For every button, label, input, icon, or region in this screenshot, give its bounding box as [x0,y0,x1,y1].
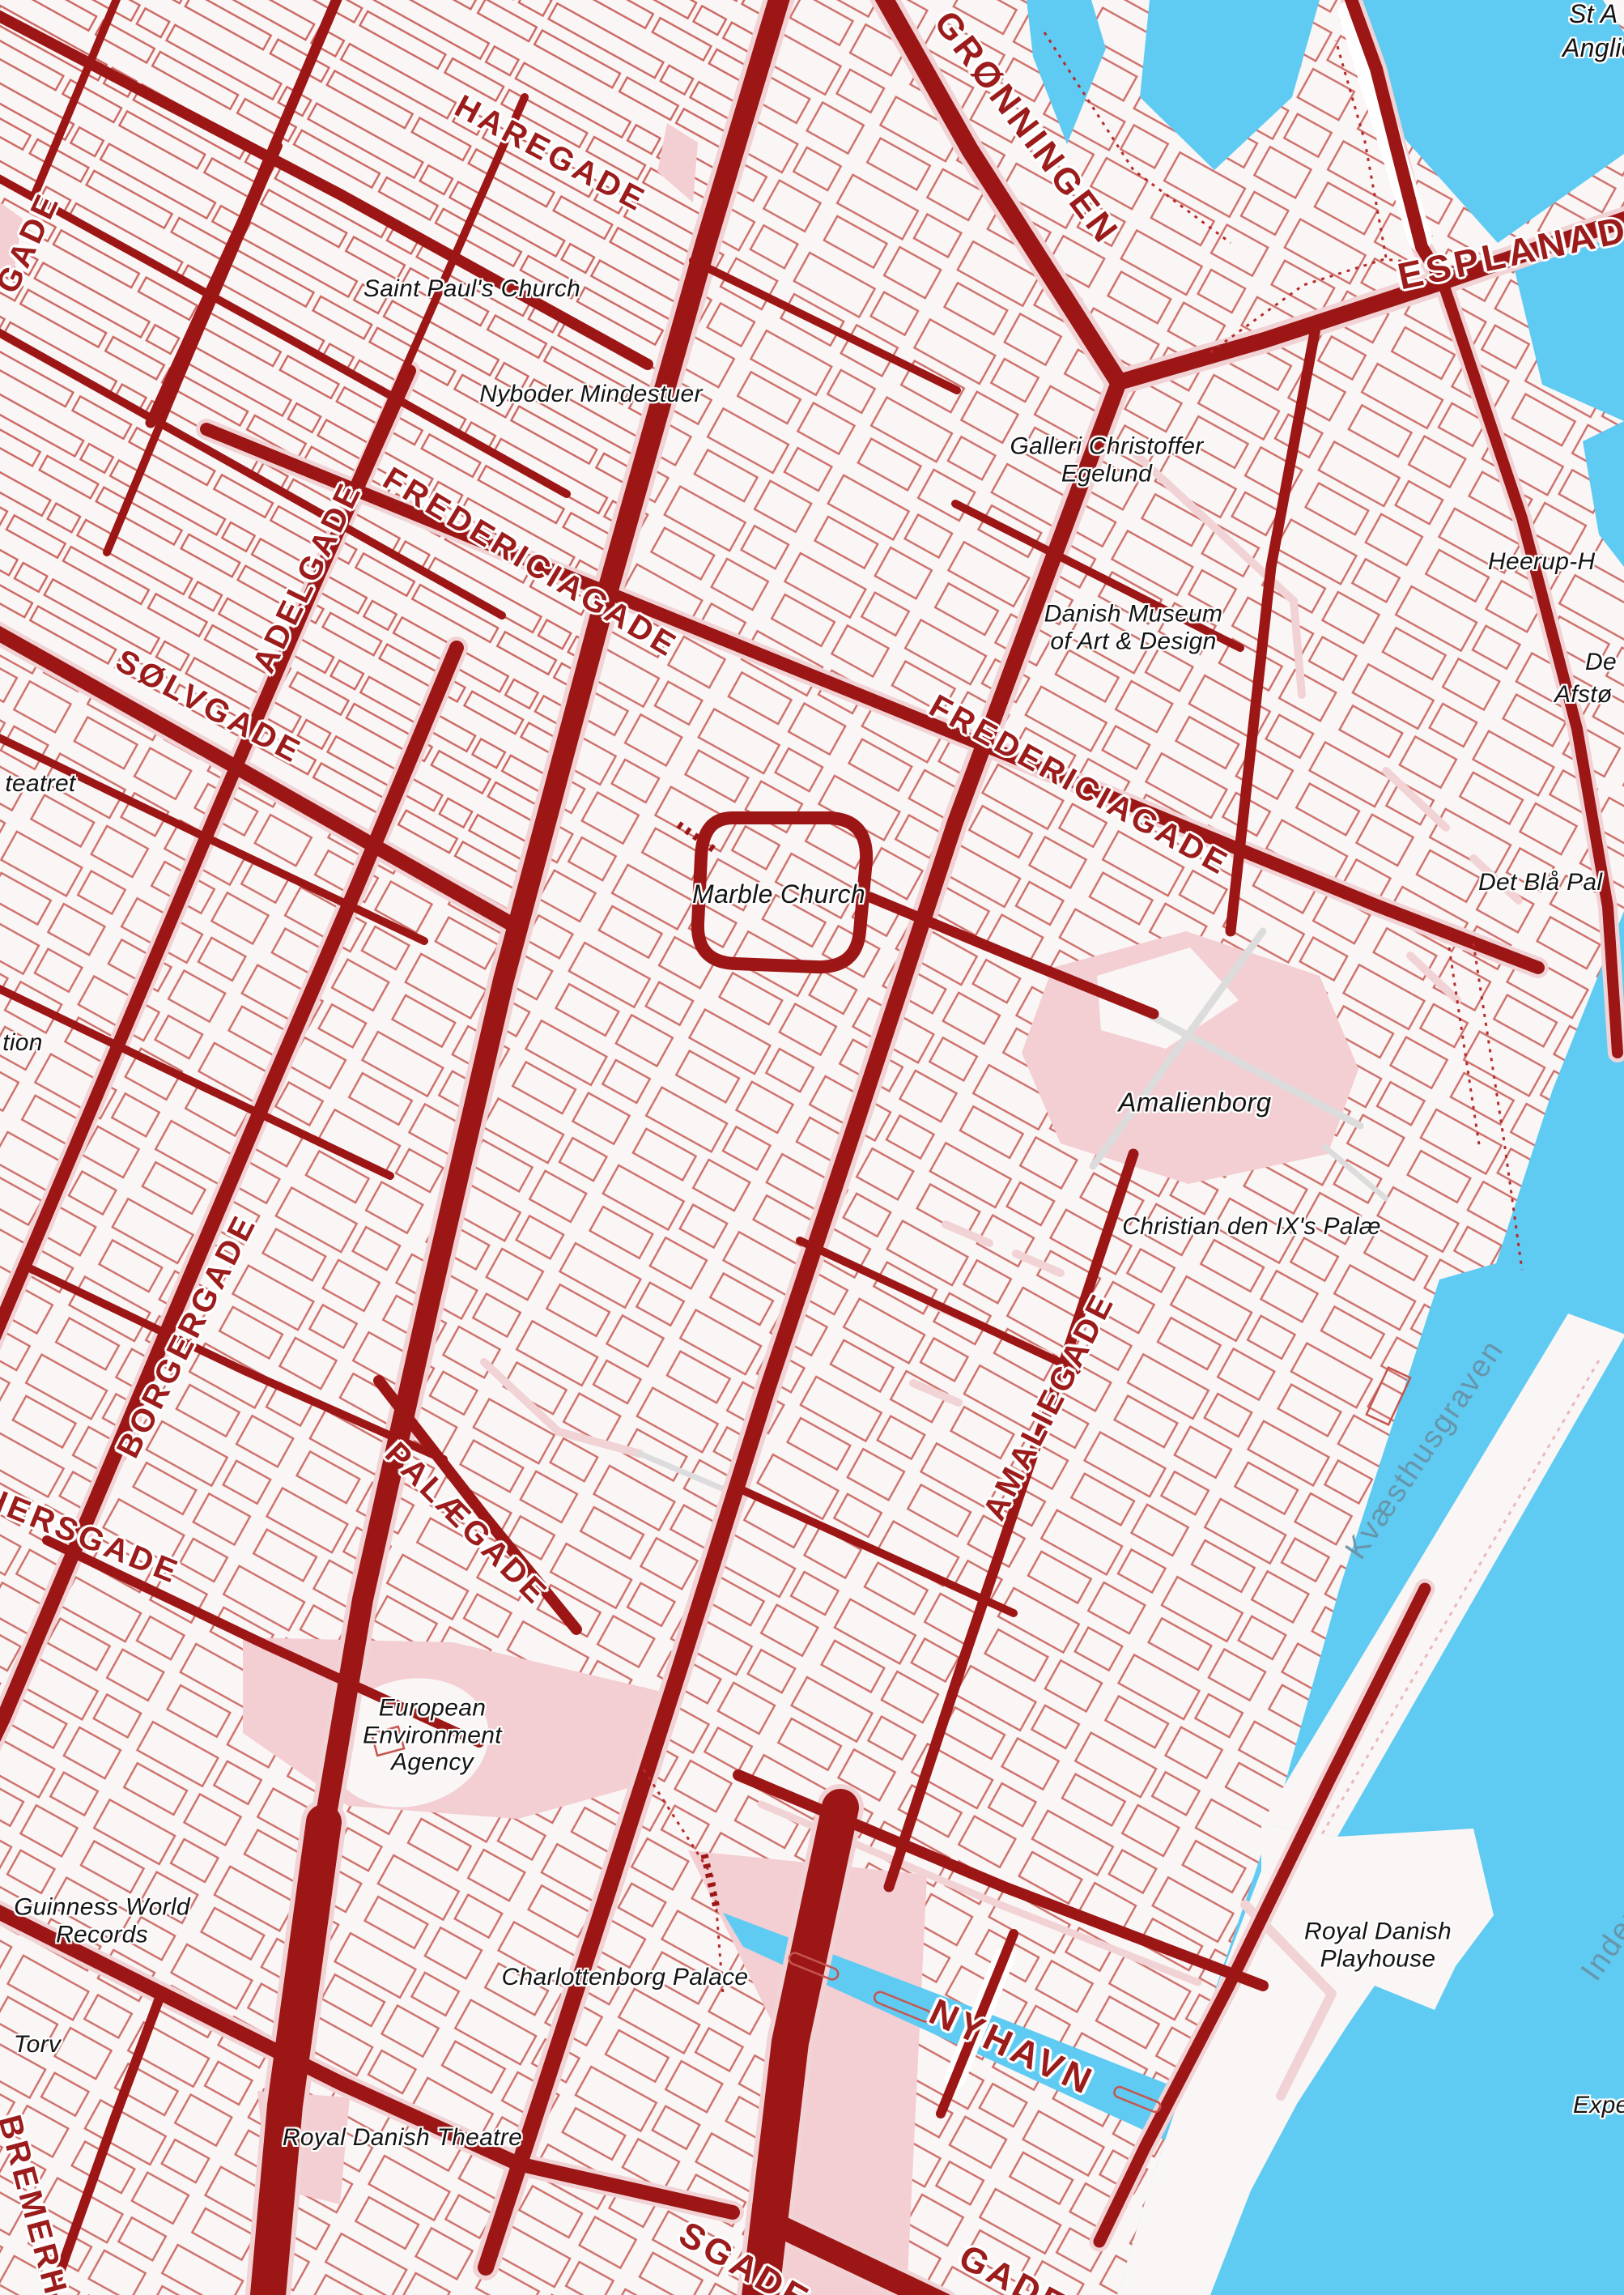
map-canvas[interactable] [0,0,1624,2295]
map: HAREGADEGRØNNINGENESPLANADENFREDERICIAGA… [0,0,1624,2295]
